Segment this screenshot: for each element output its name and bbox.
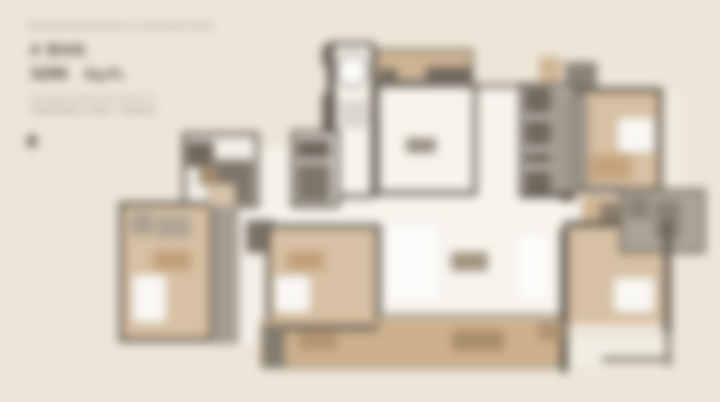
svg-text:4 BHK: 4 BHK xyxy=(30,41,88,60)
svg-text:SALEABLE AREA INCLUSIVE OF: SALEABLE AREA INCLUSIVE OF xyxy=(30,94,155,103)
svg-text:PREMIUM RESIDENCES AT KOREGAON: PREMIUM RESIDENCES AT KOREGAON PARK xyxy=(28,22,214,31)
svg-text:4 BEDROOMS | 4 BATH2 PARKING: 4 BEDROOMS | 4 BATH2 PARKING xyxy=(30,106,157,115)
